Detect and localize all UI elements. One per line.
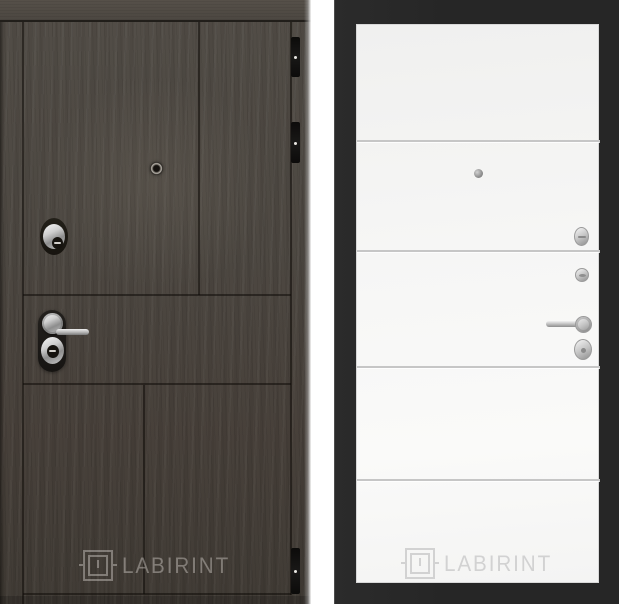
right-door-photo: LABIRINT <box>334 0 619 604</box>
door-product-image: LABIRINT LABIRINT <box>0 0 619 604</box>
lever-handle <box>56 329 89 335</box>
labirint-logo-icon <box>83 550 113 581</box>
left-door-photo: LABIRINT <box>0 0 311 604</box>
photo-gap <box>311 0 334 604</box>
brand-watermark: LABIRINT <box>405 548 559 579</box>
panel-groove <box>23 294 291 296</box>
lock-cylinder <box>574 339 592 360</box>
door-hinge <box>291 122 300 163</box>
thumbturn-knob <box>574 227 589 246</box>
door-frame-edge <box>0 0 4 604</box>
trim-line <box>357 479 600 481</box>
panel-groove <box>198 22 200 295</box>
panel-groove <box>290 22 292 595</box>
photo-edge-fade <box>304 0 311 604</box>
trim-line <box>357 250 600 252</box>
white-door-leaf: LABIRINT <box>356 24 599 583</box>
key-slot <box>49 350 56 352</box>
handle-rosette <box>575 316 592 333</box>
labirint-logo-icon <box>405 548 435 579</box>
night-latch-knob <box>575 268 589 282</box>
brand-watermark: LABIRINT <box>83 550 237 581</box>
brand-watermark-text: LABIRINT <box>444 551 552 577</box>
door-hinge <box>291 548 300 594</box>
door-bottom-shade <box>0 596 311 604</box>
trim-line <box>357 140 600 142</box>
panel-groove <box>23 593 291 595</box>
panel-groove <box>23 383 291 385</box>
trim-line <box>357 366 600 368</box>
door-top-rail <box>0 0 311 22</box>
door-hinge <box>291 37 300 77</box>
key-slot <box>54 242 61 244</box>
peephole <box>150 162 163 175</box>
deadbolt-cylinder <box>40 218 68 255</box>
lock-cylinder <box>41 337 64 364</box>
panel-groove <box>22 22 24 604</box>
peephole <box>474 169 483 178</box>
brand-watermark-text: LABIRINT <box>122 553 230 579</box>
cylinder-face <box>43 224 65 249</box>
